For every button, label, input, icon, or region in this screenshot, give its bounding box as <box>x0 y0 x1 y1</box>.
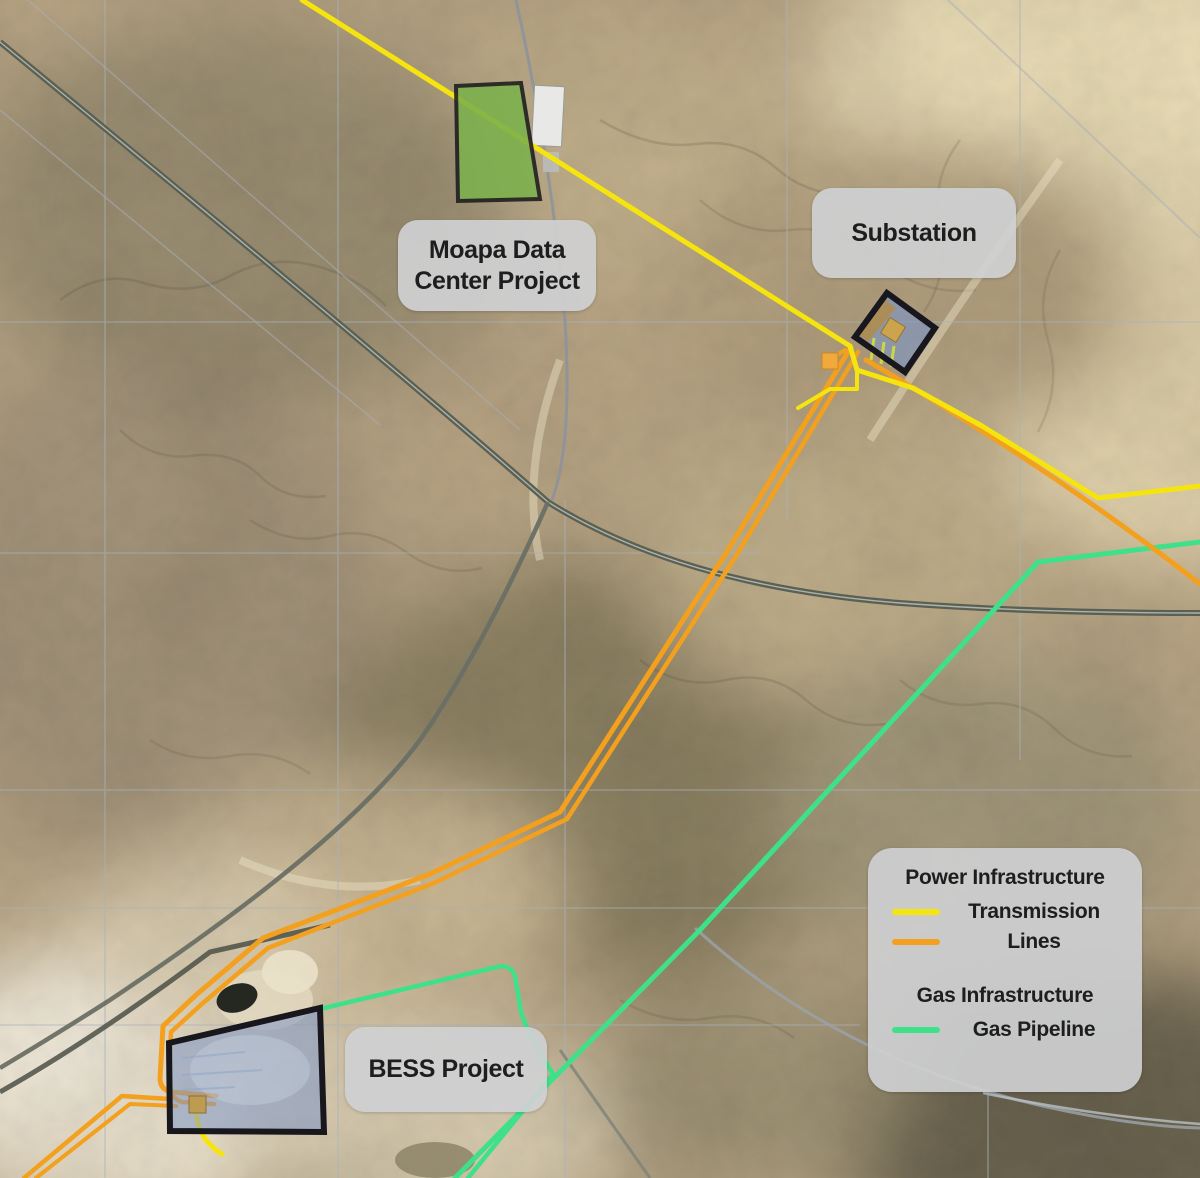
legend-transmission-label-line1: Transmission <box>940 900 1128 924</box>
satellite-map: Moapa Data Center Project Substation BES… <box>0 0 1200 1178</box>
legend-transmission-label-line2: Lines <box>940 930 1128 954</box>
moapa-label-line2: Center Project <box>414 266 579 297</box>
legend-row-transmission-1: Transmission <box>882 900 1128 924</box>
legend-swatch-transmission-orange <box>892 939 940 945</box>
legend-swatch-gas-green <box>892 1027 940 1033</box>
legend-power-title: Power Infrastructure <box>882 866 1128 890</box>
legend-row-gas: Gas Pipeline <box>882 1018 1128 1042</box>
moapa-label-line1: Moapa Data <box>429 235 565 266</box>
power-facility-marker <box>822 353 838 369</box>
substation-label: Substation <box>812 188 1016 278</box>
legend-gas-label: Gas Pipeline <box>940 1018 1128 1042</box>
legend-row-transmission-2: Lines <box>882 930 1128 954</box>
legend-gas-title: Gas Infrastructure <box>882 984 1128 1008</box>
warehouse-building <box>531 85 564 146</box>
moapa-label: Moapa Data Center Project <box>398 220 596 311</box>
map-legend: Power Infrastructure Transmission Lines … <box>868 848 1142 1092</box>
bess-label: BESS Project <box>345 1027 547 1112</box>
legend-swatch-transmission-yellow <box>892 909 940 915</box>
bess-marker <box>189 1096 206 1113</box>
